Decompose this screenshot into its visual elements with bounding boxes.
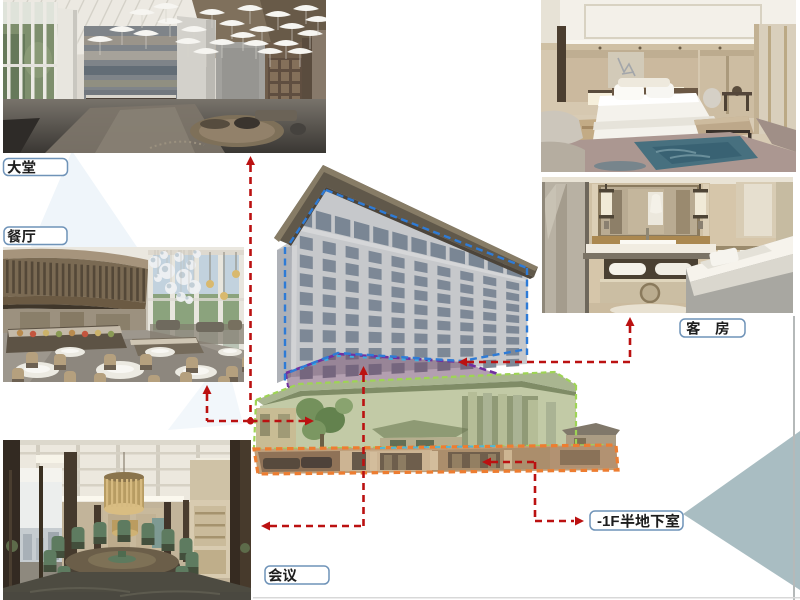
svg-text:-1F: -1F [597, 513, 620, 530]
